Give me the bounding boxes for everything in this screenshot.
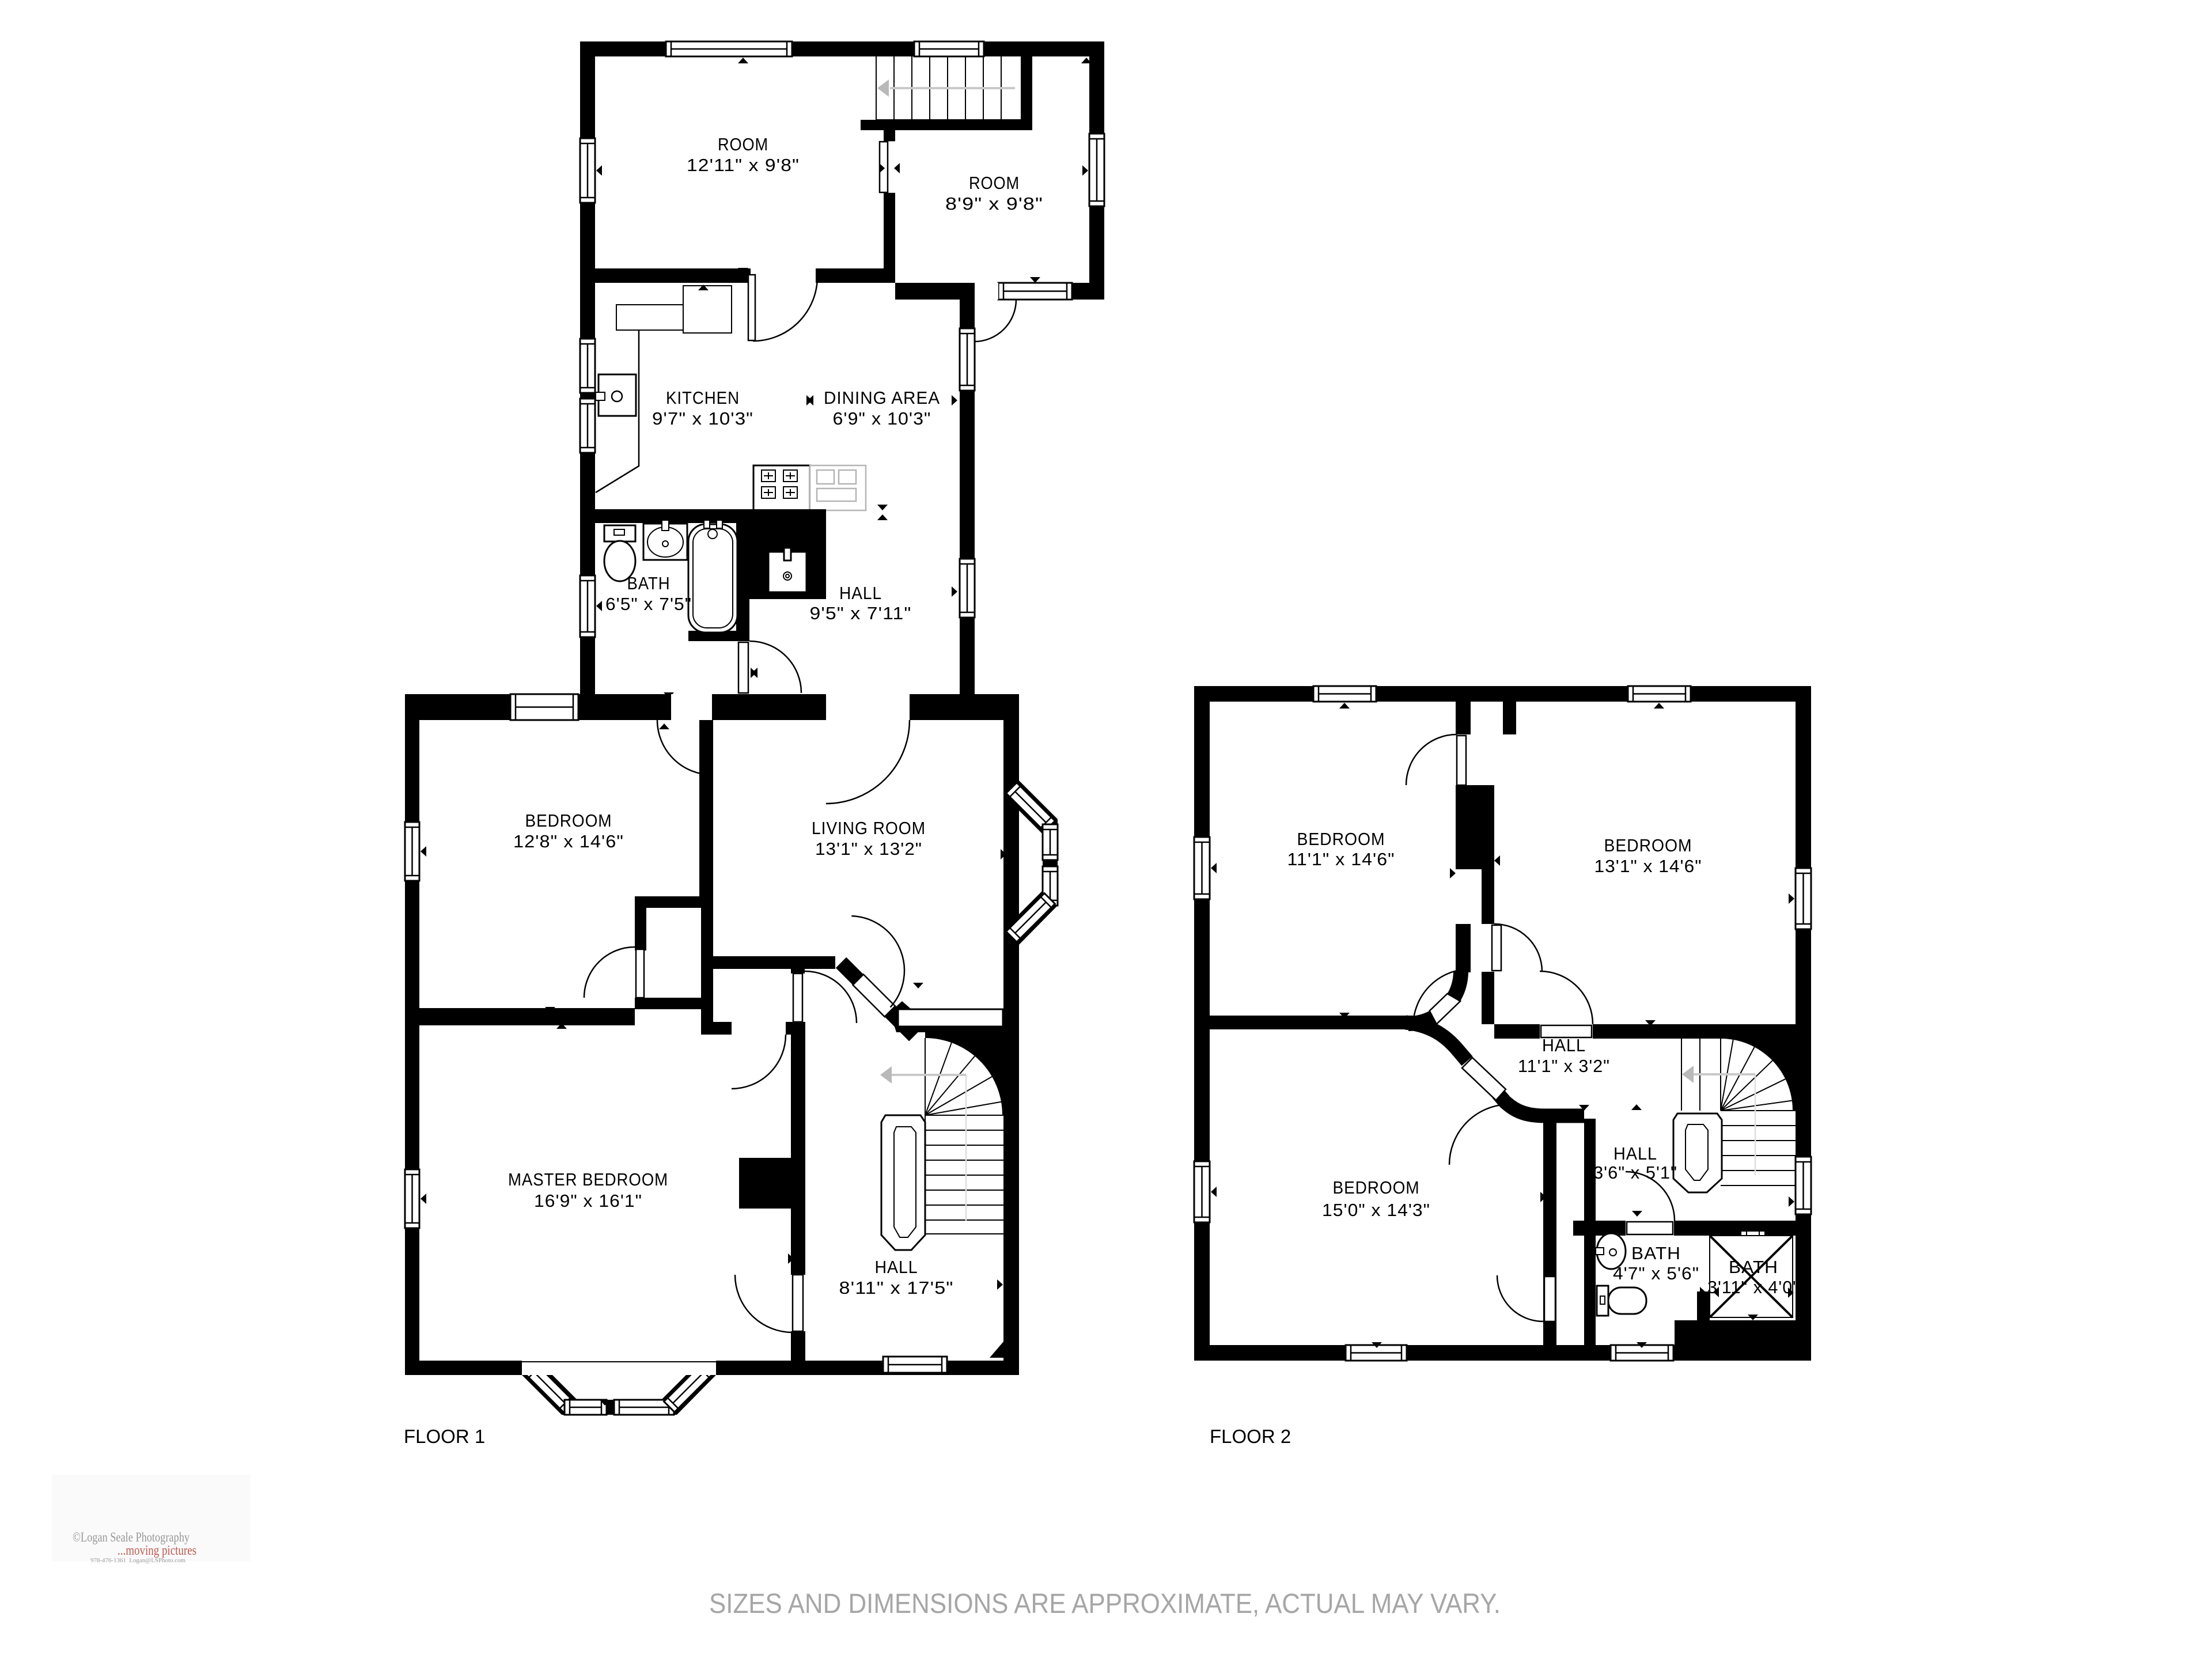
svg-text:©Logan Seale Photography: ©Logan Seale Photography — [73, 1530, 190, 1544]
svg-text:6'9" x 10'3": 6'9" x 10'3" — [833, 408, 931, 429]
svg-text:15'0" x 14'3": 15'0" x 14'3" — [1322, 1200, 1430, 1220]
svg-text:BEDROOM: BEDROOM — [1604, 835, 1692, 855]
svg-text:13'1" x 14'6": 13'1" x 14'6" — [1594, 856, 1702, 876]
svg-text:13'1" x 13'2": 13'1" x 13'2" — [815, 839, 922, 859]
svg-text:6'5" x 7'5": 6'5" x 7'5" — [605, 594, 692, 614]
svg-text:BEDROOM: BEDROOM — [525, 810, 612, 831]
svg-text:HALL: HALL — [1542, 1035, 1586, 1055]
svg-text:ROOM: ROOM — [969, 173, 1020, 193]
svg-text:LIVING ROOM: LIVING ROOM — [812, 818, 926, 838]
svg-text:8'9" x 9'8": 8'9" x 9'8" — [945, 194, 1043, 214]
svg-text:BATH: BATH — [1631, 1243, 1681, 1263]
svg-text:3'11" x 4'0": 3'11" x 4'0" — [1707, 1277, 1800, 1297]
svg-text:ROOM: ROOM — [718, 134, 768, 154]
svg-text:...moving pictures: ...moving pictures — [118, 1543, 196, 1558]
svg-text:HALL: HALL — [1613, 1143, 1657, 1164]
svg-text:8'11" x 17'5": 8'11" x 17'5" — [839, 1278, 954, 1298]
svg-text:BEDROOM: BEDROOM — [1333, 1177, 1420, 1198]
svg-text:12'11" x 9'8": 12'11" x 9'8" — [687, 155, 800, 175]
svg-text:9'7" x 10'3": 9'7" x 10'3" — [652, 408, 753, 429]
svg-text:MASTER BEDROOM: MASTER BEDROOM — [508, 1169, 668, 1190]
svg-text:SIZES AND DIMENSIONS ARE APPRO: SIZES AND DIMENSIONS ARE APPROXIMATE, AC… — [709, 1589, 1501, 1619]
svg-text:DINING AREA: DINING AREA — [824, 388, 940, 408]
svg-text:HALL: HALL — [875, 1257, 918, 1277]
svg-text:BATH: BATH — [627, 573, 671, 593]
svg-text:BATH: BATH — [1729, 1257, 1778, 1277]
svg-text:BEDROOM: BEDROOM — [1297, 829, 1385, 849]
svg-text:3'6" x 5'1": 3'6" x 5'1" — [1593, 1162, 1677, 1183]
svg-text:KITCHEN: KITCHEN — [666, 388, 740, 408]
svg-text:16'9" x 16'1": 16'9" x 16'1" — [534, 1191, 642, 1211]
svg-text:11'1" x 3'2": 11'1" x 3'2" — [1518, 1056, 1610, 1076]
svg-text:12'8" x 14'6": 12'8" x 14'6" — [513, 831, 624, 851]
svg-text:HALL: HALL — [839, 583, 882, 603]
svg-text:9'5" x 7'11": 9'5" x 7'11" — [810, 603, 912, 623]
svg-text:4'7" x 5'6": 4'7" x 5'6" — [1613, 1263, 1699, 1283]
svg-text:11'1" x 14'6": 11'1" x 14'6" — [1287, 849, 1395, 869]
svg-text:FLOOR 1: FLOOR 1 — [404, 1426, 485, 1447]
svg-text:FLOOR 2: FLOOR 2 — [1210, 1426, 1291, 1447]
svg-text:978-476-1361 Logan@LSPhoto.co: 978-476-1361 Logan@LSPhoto.com — [90, 1557, 185, 1564]
